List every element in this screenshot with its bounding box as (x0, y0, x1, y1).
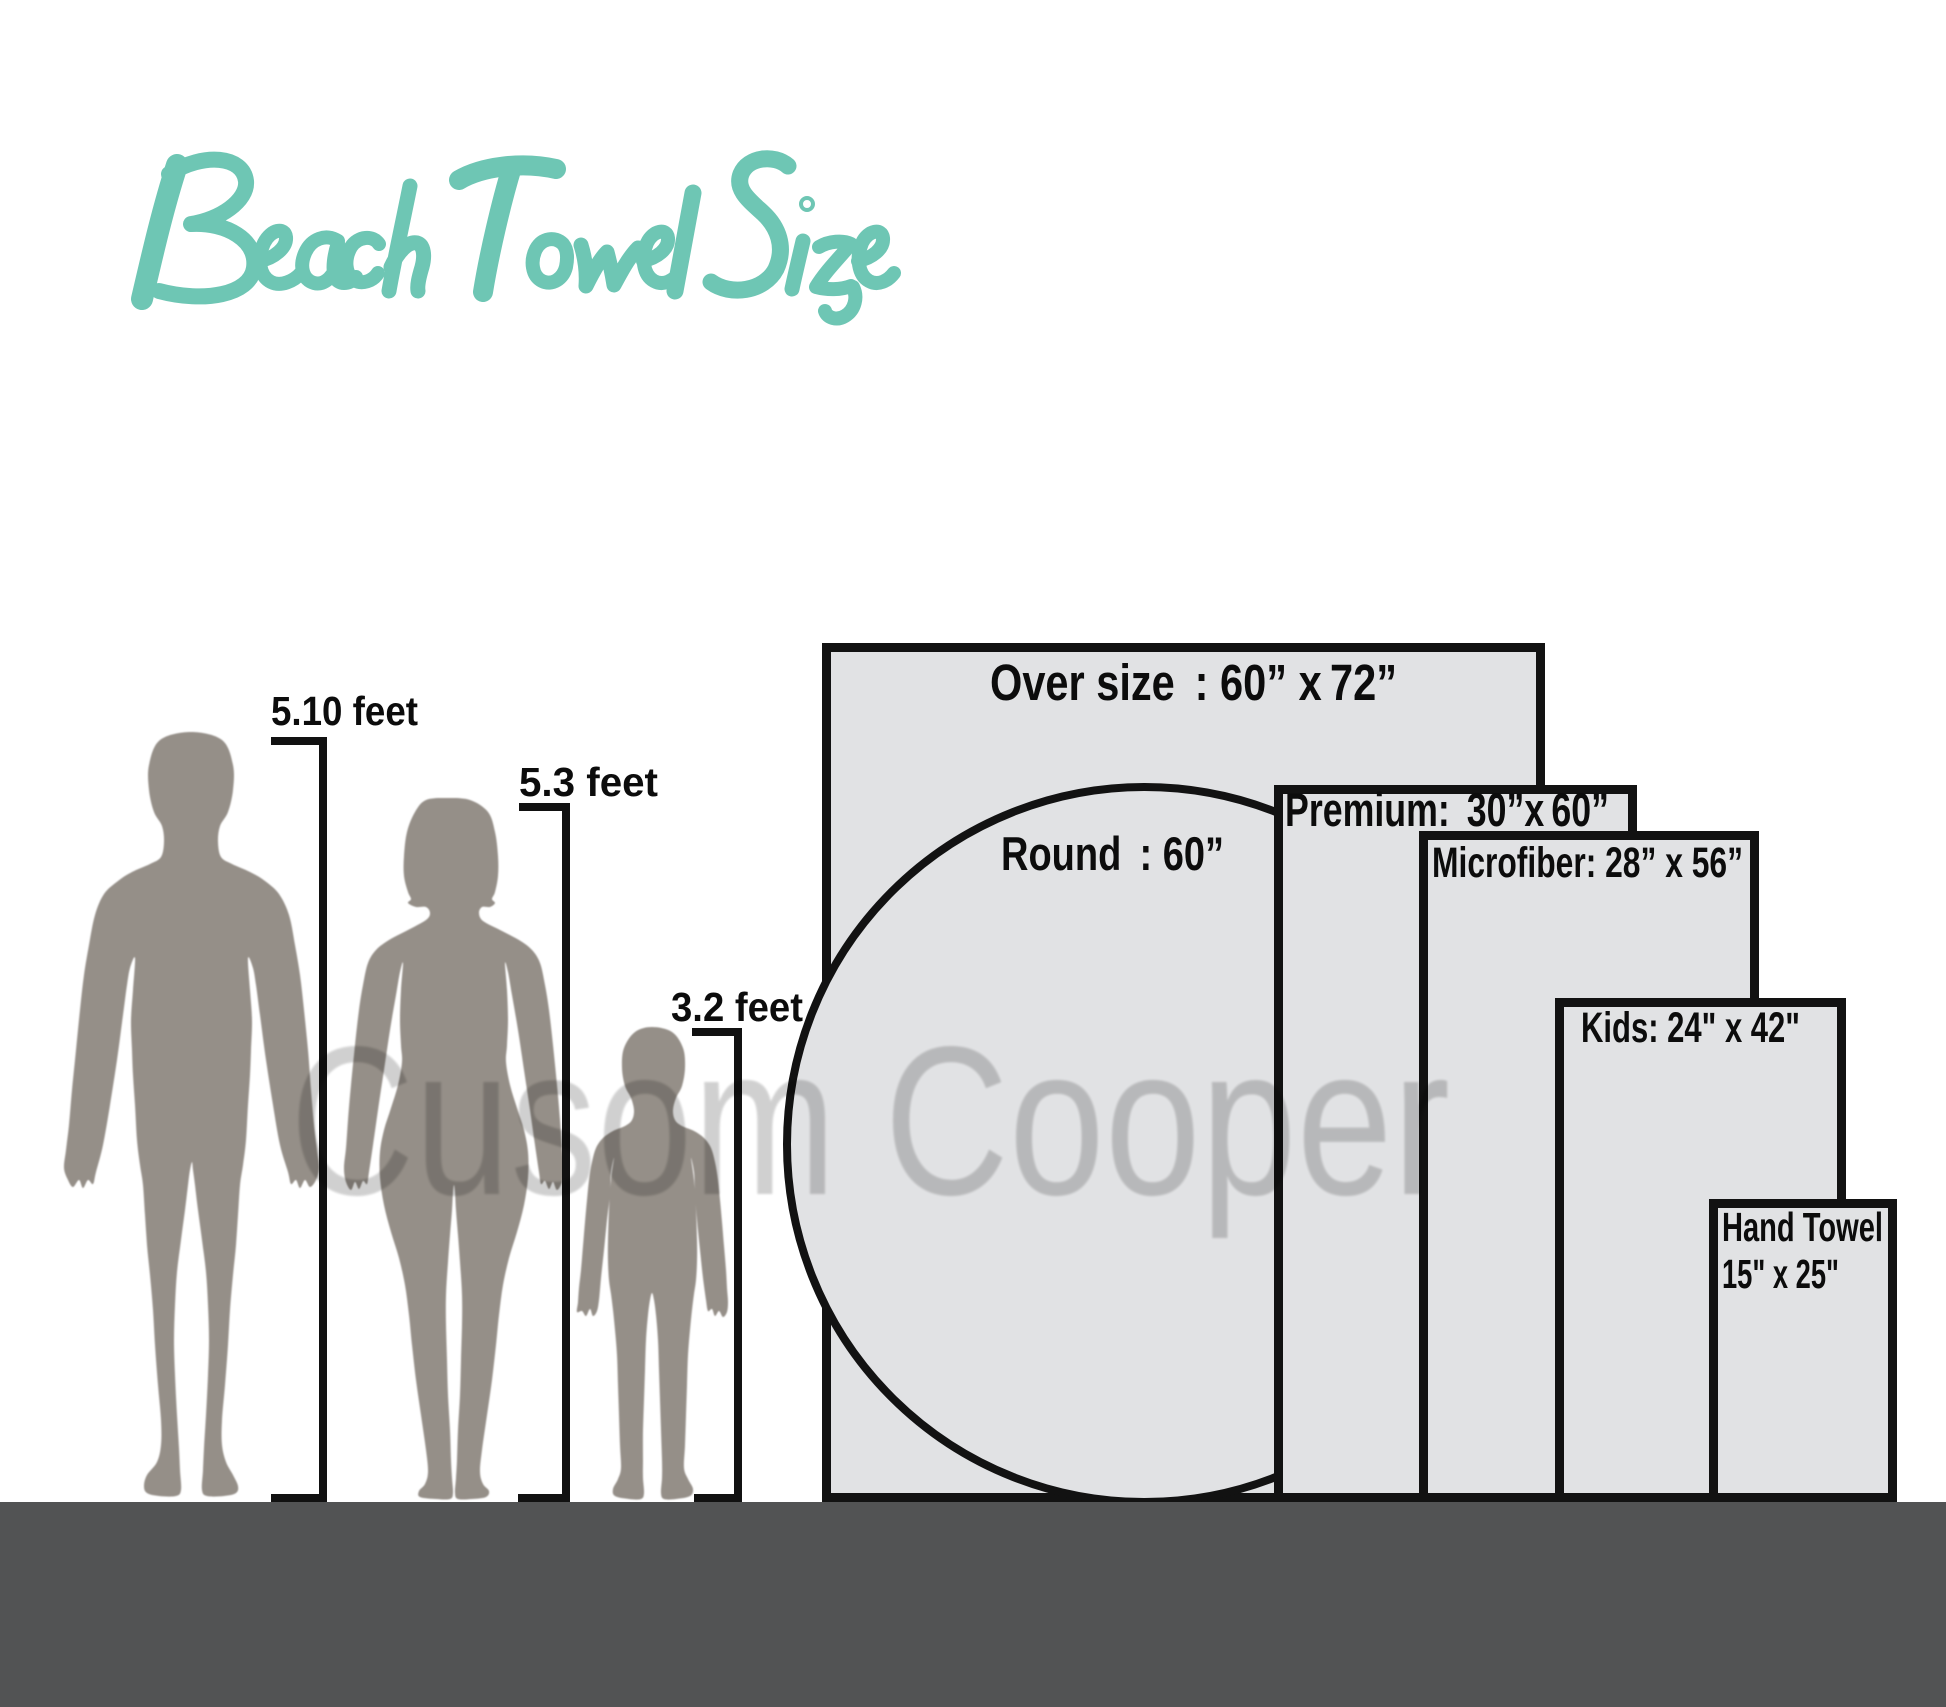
svg-text:5.3 feet: 5.3 feet (519, 759, 658, 805)
svg-text:Round : 60”: Round : 60” (1001, 827, 1224, 880)
svg-text:15" x 25": 15" x 25" (1722, 1251, 1839, 1297)
svg-text:Microfiber: 28” x 56”: Microfiber: 28” x 56” (1432, 839, 1743, 887)
svg-text:5.10 feet: 5.10 feet (271, 688, 418, 734)
svg-text:Over size : 60” x 72”: Over size : 60” x 72” (990, 654, 1397, 711)
svg-text:Kids: 24" x 42": Kids: 24" x 42" (1581, 1004, 1800, 1052)
svg-text:Cusom Cooper: Cusom Cooper (290, 1002, 1450, 1239)
svg-text:Hand Towel: Hand Towel (1722, 1204, 1883, 1250)
svg-text:Premium: 30”x 60”: Premium: 30”x 60” (1285, 783, 1609, 836)
